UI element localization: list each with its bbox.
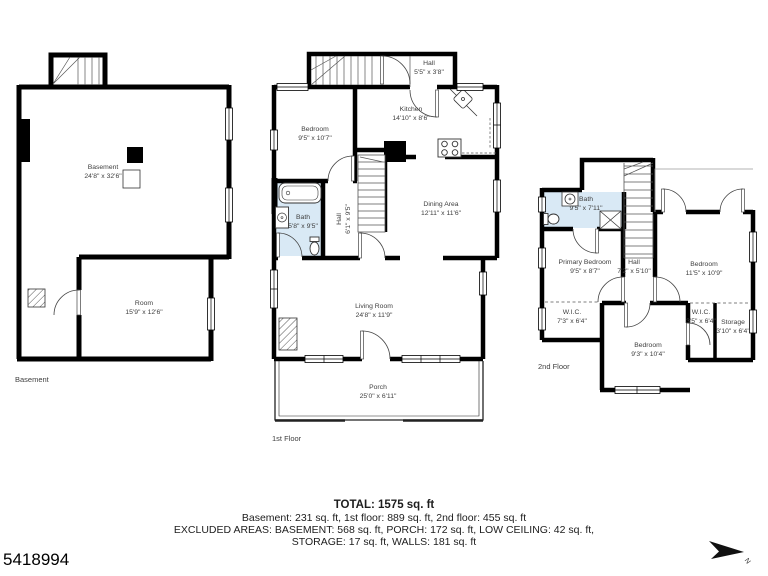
room-name: Hall [335, 204, 344, 234]
room-dims: 24'8" x 11'9" [355, 311, 393, 320]
room-label-hall-top: Hall 5'5" x 3'8" [414, 59, 444, 77]
room-name: W.I.C. [557, 308, 587, 317]
foundation-ledge [19, 119, 30, 162]
room-label-storage: Storage 3'10" x 6'4" [716, 318, 750, 336]
room-dims: 7'2" x 5'10" [617, 267, 651, 276]
room-label-primary-bedroom: Primary Bedroom 9'5" x 8'7" [559, 258, 612, 276]
floor-caption-second: 2nd Floor [538, 362, 570, 371]
room-name: Bedroom [686, 260, 723, 269]
room-label-dining: Dining Area 12'11" x 11'6" [421, 200, 461, 218]
room-label-hall-1f: Hall 6'1" x 9'5" [335, 204, 353, 234]
room-label-wic-right: W.I.C. 3'5" x 6'4" [686, 308, 716, 326]
room-dims: 14'10" x 8'6" [392, 114, 429, 123]
room-name: Kitchen [392, 105, 429, 114]
room-name: Bath [288, 213, 318, 222]
first-floor-plan [271, 54, 501, 421]
low-ceiling-outline [655, 169, 753, 212]
front-door [361, 331, 391, 359]
floorplan-canvas: N [0, 0, 768, 576]
floor-caption-basement: Basement [15, 375, 49, 384]
floor-caption-first: 1st Floor [272, 434, 301, 443]
basement-stairs [53, 57, 99, 85]
utility-box [123, 170, 140, 188]
room-label-kitchen: Kitchen 14'10" x 8'6" [392, 105, 429, 123]
room-name: Primary Bedroom [559, 258, 612, 267]
area-summary: TOTAL: 1575 sq. ft Basement: 231 sq. ft,… [0, 499, 768, 548]
room-dims: 9'5" x 10'7" [298, 134, 332, 143]
chimney [384, 141, 406, 162]
room-dims: 3'10" x 6'4" [716, 327, 750, 336]
closet-door-right [720, 189, 745, 212]
room-label-hall-2f: Hall 7'2" x 5'10" [617, 258, 651, 276]
room-label-basement: Basement 24'8" x 32'6" [84, 163, 121, 181]
room-name: Hall [414, 59, 444, 68]
room-label-bedroom-1f: Bedroom 9'5" x 10'7" [298, 125, 332, 143]
room-dims: 5'5" x 3'8" [414, 68, 444, 77]
shower [600, 211, 621, 229]
room-dims: 11'5" x 10'9" [686, 269, 723, 278]
toilet [544, 214, 560, 225]
room-dims: 7'3" x 6'4" [557, 317, 587, 326]
primary-bedroom-door [573, 229, 599, 253]
room-label-living: Living Room 24'8" x 11'9" [355, 302, 393, 320]
chimney [127, 147, 143, 163]
room-dims: 5'8" x 9'5" [288, 222, 318, 231]
room-dims: 12'11" x 11'6" [421, 209, 461, 218]
stairwell [624, 162, 653, 258]
listing-id: 5418994 [3, 550, 69, 570]
room-name: Bedroom [298, 125, 332, 134]
room-label-bedroom-bottom: Bedroom 9'3" x 10'4" [631, 341, 665, 359]
room-dims: 25'0" x 6'11" [360, 392, 397, 401]
total-area: TOTAL: 1575 sq. ft [0, 499, 768, 512]
room-label-wic-left: W.I.C. 7'3" x 6'4" [557, 308, 587, 326]
bottom-bedroom-door [625, 303, 651, 327]
floor-areas: Basement: 231 sq. ft, 1st floor: 889 sq.… [0, 512, 768, 524]
wic-door [687, 323, 711, 345]
room-dims: 6'1" x 9'5" [344, 204, 353, 234]
hall-door [359, 233, 386, 258]
room-name: Hall [617, 258, 651, 267]
closet-door-left [662, 189, 687, 212]
excluded-areas-1: EXCLUDED AREAS: BASEMENT: 568 sq. ft, PO… [0, 524, 768, 536]
excluded-areas-2: STORAGE: 17 sq. ft, WALLS: 181 sq. ft [0, 536, 768, 548]
north-label: N [743, 557, 752, 565]
hall-door-left [598, 277, 625, 302]
room-label-bedroom-right: Bedroom 11'5" x 10'9" [686, 260, 723, 278]
room-name: Porch [360, 383, 397, 392]
upper-stairs [311, 56, 410, 87]
room-dims: 9'3" x 10'4" [631, 350, 665, 359]
kitchen-sink [450, 89, 477, 116]
room-label-porch: Porch 25'0" x 6'11" [360, 383, 397, 401]
hatched-area [28, 289, 45, 307]
room-name: Room [125, 299, 162, 308]
basement-stairwell [358, 155, 385, 232]
room-name: Bath [570, 195, 603, 204]
fireplace [279, 318, 297, 350]
room-label-bath-2f: Bath 9'5" x 7'11" [570, 195, 603, 213]
room-label-bath-1f: Bath 5'8" x 9'5" [288, 213, 318, 231]
toilet [310, 237, 319, 255]
room-dims: 3'5" x 6'4" [686, 317, 716, 326]
room-name: W.I.C. [686, 308, 716, 317]
room-name: Basement [84, 163, 121, 172]
bathtub [279, 183, 321, 203]
room-name: Storage [716, 318, 750, 327]
room-dims: 24'8" x 32'6" [84, 172, 121, 181]
room-dims: 15'9" x 12'6" [125, 308, 162, 317]
stair-hall-door [381, 56, 411, 84]
stove [438, 139, 461, 157]
bedroom-door [328, 156, 355, 181]
hall-door-right [654, 277, 681, 302]
basement-room-door [54, 290, 81, 315]
bath-sink [276, 207, 289, 228]
room-name: Dining Area [421, 200, 461, 209]
closet-dashed-walls [545, 302, 750, 303]
room-name: Living Room [355, 302, 393, 311]
kitchen-counter [462, 118, 497, 153]
floorplan-page: N Basement 24'8" x 32'6" Room 15'9" x 12… [0, 0, 768, 576]
room-label-basement-room: Room 15'9" x 12'6" [125, 299, 162, 317]
room-name: Bedroom [631, 341, 665, 350]
room-dims: 9'5" x 8'7" [559, 267, 612, 276]
room-dims: 9'5" x 7'11" [570, 204, 603, 213]
